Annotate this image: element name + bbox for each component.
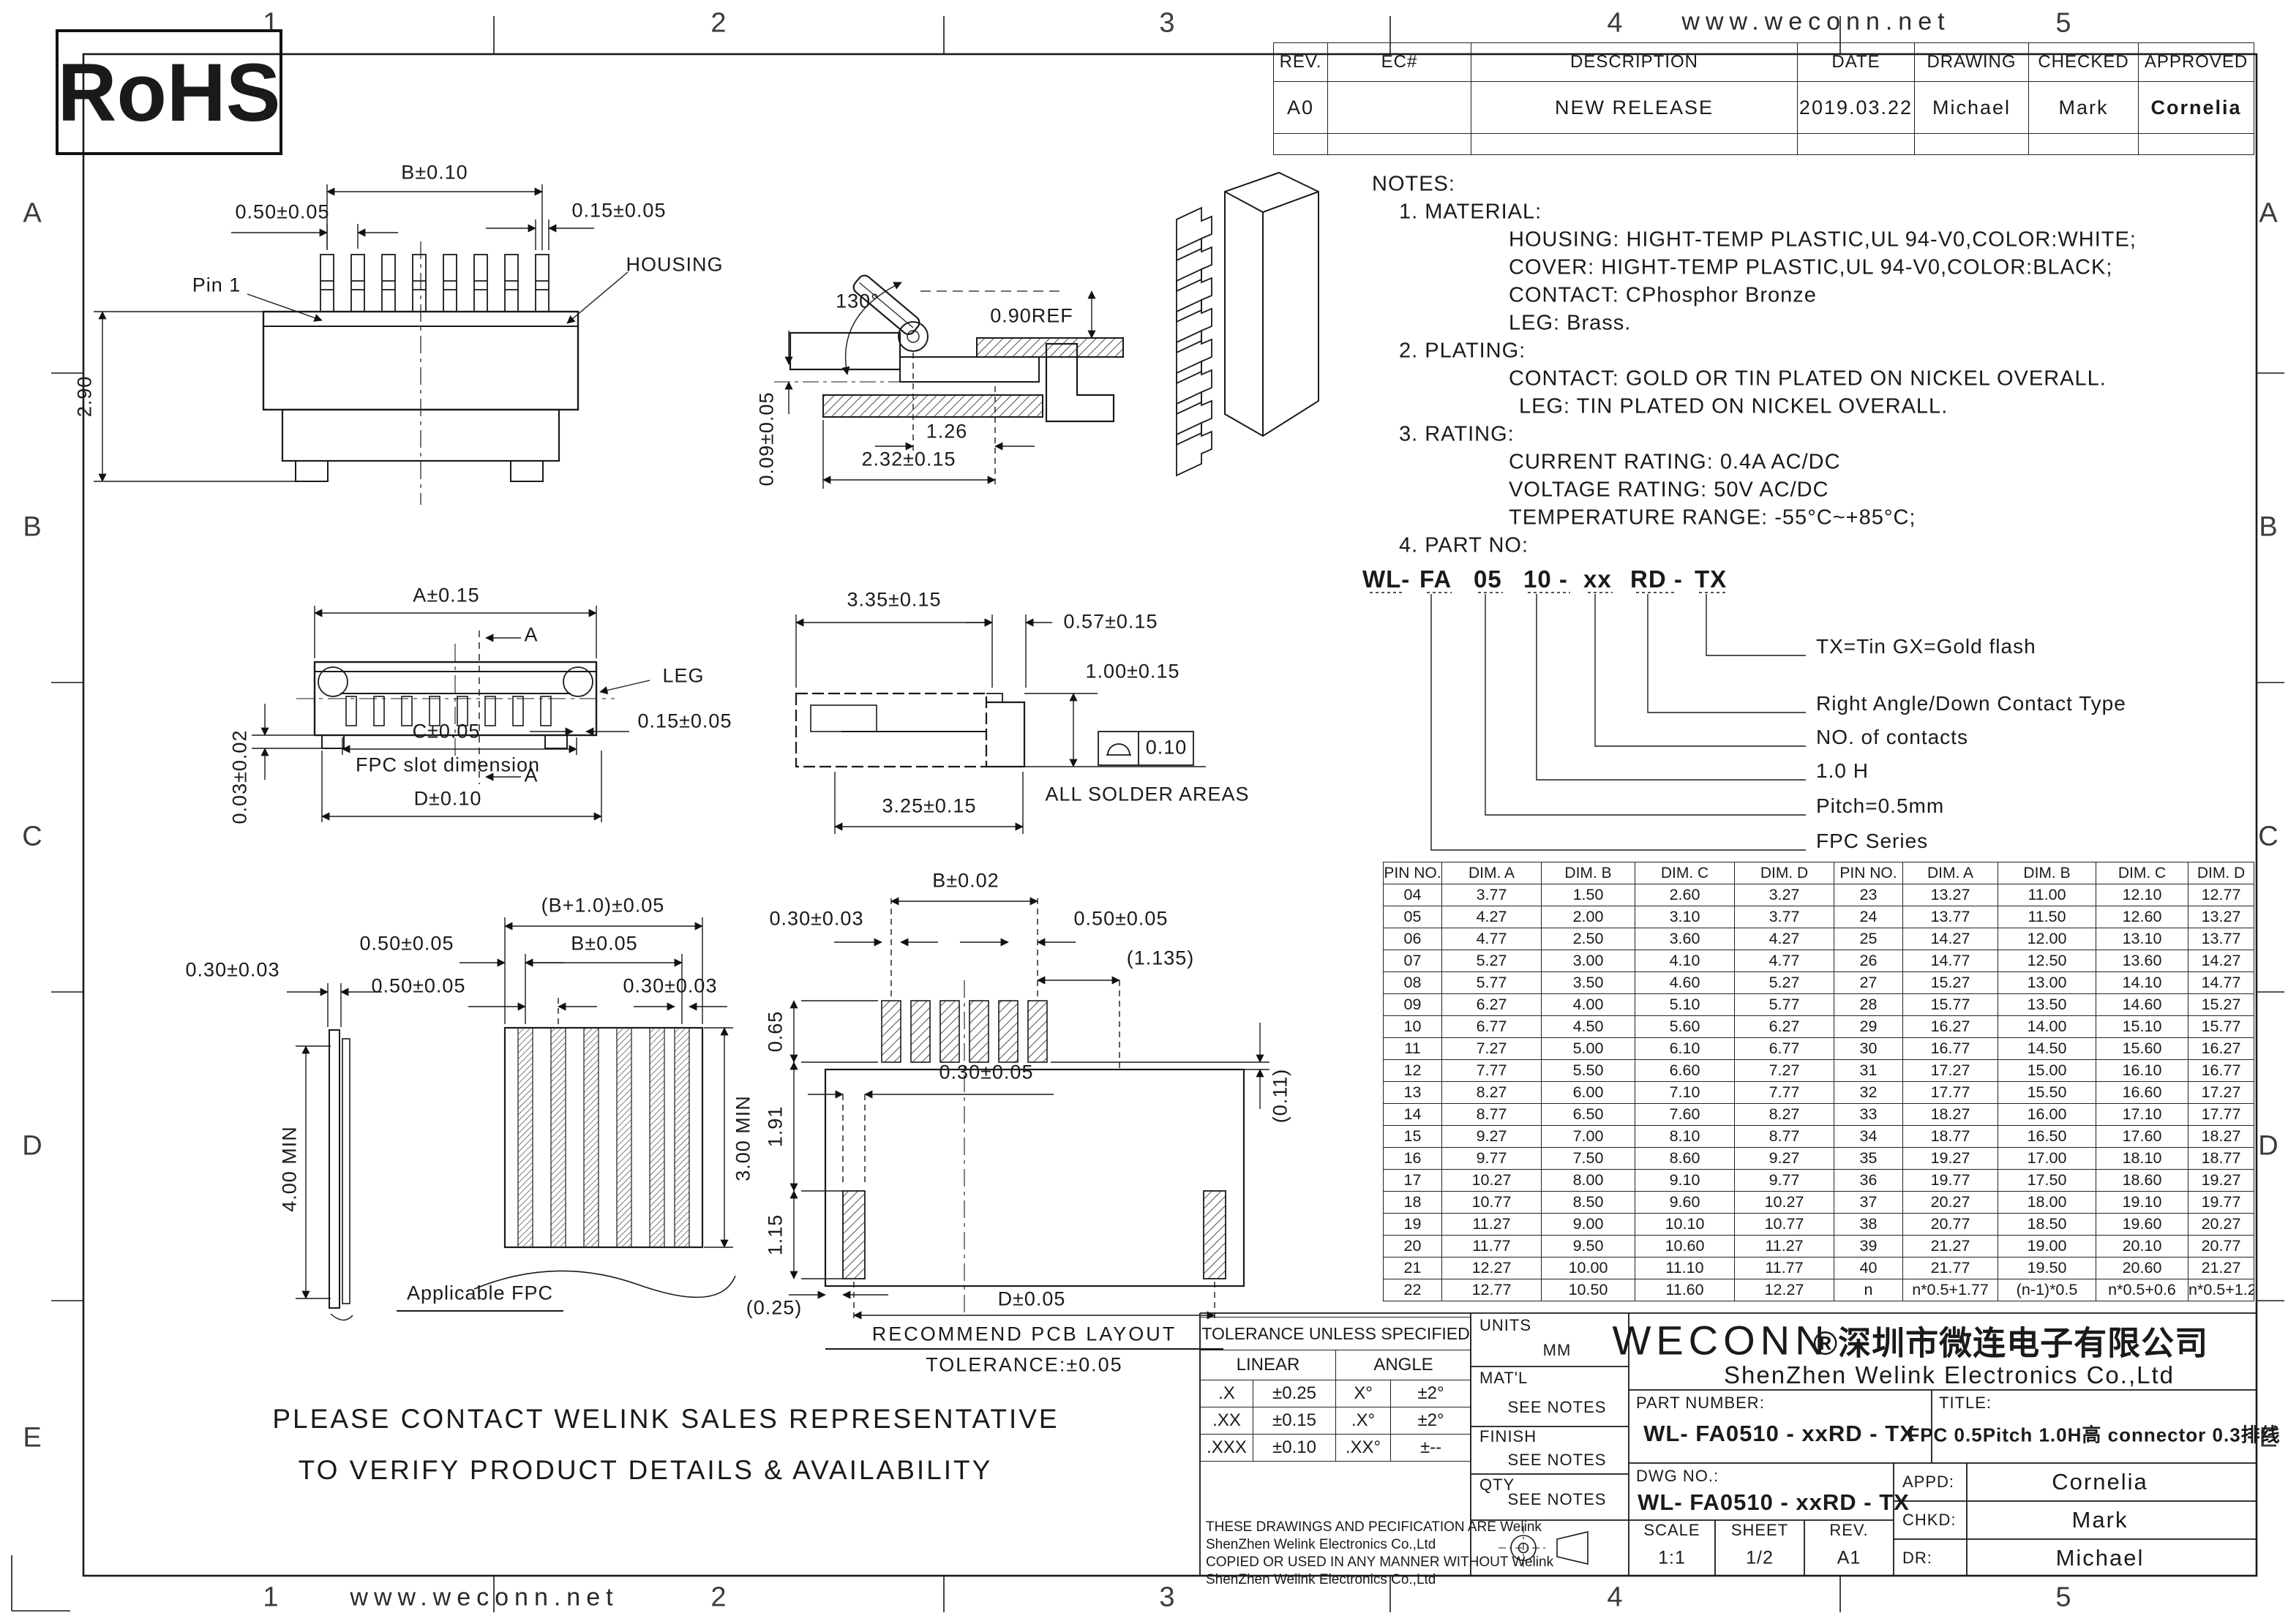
zone-col-5b: 5 [2055,1582,2071,1614]
dim-065: 0.65 [765,1011,787,1053]
label-height: 1.0 H [1816,759,1869,783]
units-label: UNITS [1479,1316,1531,1335]
section-a-top: A [524,624,538,647]
table-row: 106.77 4.505.60 6.27 [1384,1016,1834,1038]
dim-015b: 0.15±0.05 [638,710,732,733]
matl-label: MAT'L [1479,1369,1528,1388]
part-number-value: WL- FA0510 - xxRD - TX [1643,1421,1916,1447]
table-row: 2011.77 9.5010.60 11.27 [1384,1236,1834,1258]
dim-pitch-050: 0.50±0.05 [236,201,330,224]
rohs-text: RoHS [58,45,281,140]
date-header: DATE [1798,43,1915,82]
table-row: 054.27 2.003.10 3.77 [1384,906,1834,928]
scale-label: SCALE [1643,1521,1700,1540]
dim-a-header: DIM. A [1903,862,1998,884]
appd-value: Cornelia [2052,1469,2148,1495]
leg-label: LEG [662,665,704,688]
dim-d010: D±0.10 [414,788,482,811]
part-number-label: PART NUMBER: [1636,1394,1765,1413]
table-row: 2112.27 10.0011.10 11.77 [1384,1258,1834,1279]
dim-003: 0.03±0.02 [229,730,252,824]
zone-row-a-r: A [2259,198,2277,230]
pcb-caption-1: RECOMMEND PCB LAYOUT [872,1323,1177,1346]
chkd-label: CHKD: [1902,1511,1956,1530]
table-row: 127.77 5.506.60 7.27 [1384,1060,1834,1082]
table-row: 064.77 2.503.60 4.27 [1384,928,1834,950]
linear-header: LINEAR [1201,1350,1336,1380]
table-row: nn*0.5+1.77 (n-1)*0.5n*0.5+0.6 n*0.5+1.2… [1834,1279,2254,1301]
dim-b-header: DIM. B [1542,862,1635,884]
note-current: CURRENT RATING: 0.4A AC/DC [1509,451,1841,475]
zone-row-a: A [23,198,41,230]
company-name-cn: ®深圳市微连电子有限公司 [1813,1317,2208,1364]
tolerance-row: .XXX±0.10 .XX°±-- [1201,1435,1471,1462]
sheet-value: 1/2 [1746,1548,1774,1569]
revision-row: A0 NEW RELEASE 2019.03.22 Michael Mark C… [1274,82,2254,134]
zone-col-3b: 3 [1159,1582,1174,1614]
partno-seg-10: 10 - [1523,565,1568,593]
brand-logo: WECONN [1612,1317,1829,1364]
table-row: 2413.77 11.5012.60 13.27 [1834,906,2254,928]
dim-table-left-header: PIN NO. DIM. A DIM. B DIM. C DIM. D [1384,862,1834,884]
table-row: 2514.27 12.0013.10 13.77 [1834,928,2254,950]
title-value: FPC 0.5Pitch 1.0H高 connector 0.3排线 [1908,1421,2280,1448]
dim-030r: 0.30±0.03 [623,975,718,998]
approved-cell: Cornelia [2139,82,2254,134]
scale-value: 1:1 [1658,1548,1686,1569]
dim-table-right-header: PIN NO. DIM. A DIM. B DIM. C DIM. D [1834,862,2254,884]
table-row: 096.27 4.005.10 5.77 [1384,994,1834,1016]
dim-050pcb: 0.50±0.05 [1074,908,1169,931]
dim-325: 3.25±0.15 [882,795,977,818]
legal-line: ShenZhen Welink Electronics Co.,Ltd [1206,1536,1553,1554]
dim-b005: B±0.05 [571,933,637,955]
table-row: 3117.27 15.0016.10 16.77 [1834,1060,2254,1082]
table-row: 159.27 7.008.10 8.77 [1384,1126,1834,1148]
note-leg: LEG: Brass. [1509,312,1631,336]
chkd-value: Mark [2072,1507,2128,1533]
pin1-label: Pin 1 [192,274,241,297]
dim-050a: 0.50±0.05 [360,933,454,955]
dim-a015: A±0.15 [413,584,479,607]
approved-header: APPROVED [2139,43,2254,82]
dwg-no-label: DWG NO.: [1636,1467,1719,1486]
table-row: 2313.27 11.0012.10 12.77 [1834,884,2254,906]
dim-030l: 0.30±0.03 [186,959,280,982]
partno-seg-rd: RD - [1630,565,1683,593]
dim-d-header: DIM. D [1735,862,1834,884]
pin-no-header: PIN NO. [1834,862,1903,884]
table-row: 1911.27 9.0010.10 10.77 [1384,1214,1834,1236]
partno-seg-wl: WL- [1362,565,1410,593]
table-row: 3318.27 16.0017.10 17.77 [1834,1104,2254,1126]
rohs-badge: RoHS [56,29,282,155]
dim-300min: 3.00 MIN [732,1095,755,1181]
appd-label: APPD: [1902,1473,1954,1492]
partno-seg-05: 05 [1474,565,1502,593]
tolerance-row: .X±0.25 X°±2° [1201,1380,1471,1407]
table-row: 085.77 3.504.60 5.27 [1384,972,1834,994]
rev-header: REV. [1274,43,1328,82]
label-plating: TX=Tin GX=Gold flash [1816,635,2036,658]
table-row: 148.77 6.507.60 8.27 [1384,1104,1834,1126]
title-label: TITLE: [1939,1394,1992,1413]
angle-header: ANGLE [1336,1350,1471,1380]
dim-c-header: DIM. C [2096,862,2188,884]
table-row: 3619.77 17.5018.60 19.27 [1834,1170,2254,1192]
dr-label: DR: [1902,1549,1932,1568]
dim-1135: (1.135) [1127,947,1195,970]
checked-cell: Mark [2029,82,2139,134]
sheet-label: SHEET [1731,1521,1788,1540]
engineering-drawing-sheet: 1 2 3 4 5 www.weconn.net 1 www.weconn.ne… [0,0,2288,1624]
zone-row-d-r: D [2258,1131,2278,1162]
ec-header: EC# [1328,43,1471,82]
date-cell: 2019.03.22 [1798,82,1915,134]
zone-row-e: E [23,1423,41,1454]
dim-a-header: DIM. A [1442,862,1542,884]
table-row: 3016.77 14.5015.60 16.27 [1834,1038,2254,1060]
dim-angle-130: 130° [836,290,879,313]
dim-050b: 0.50±0.05 [372,975,466,998]
dim-height-290: 2.90 [74,376,97,418]
zone-row-b: B [23,512,41,544]
dim-c005: C±0.05 [413,721,481,743]
table-row: 3519.27 17.0018.10 18.77 [1834,1148,2254,1170]
note-partno-heading: 4. PART NO: [1399,534,1529,558]
partno-seg-xx: xx [1583,565,1612,593]
legal-notice: THESE DRAWINGS AND PECIFICATION ARE Weli… [1206,1519,1553,1589]
dim-b002: B±0.02 [932,870,999,892]
pcb-caption-2: TOLERANCE:±0.05 [926,1354,1122,1377]
zone-row-b-r: B [2259,512,2277,544]
dwg-no-value: WL- FA0510 - xxRD - TX [1638,1489,1910,1516]
table-row: 075.27 3.004.10 4.77 [1384,950,1834,972]
finish-label: FINISH [1479,1427,1537,1446]
qty-value: SEE NOTES [1508,1490,1607,1509]
dim-100: 1.00±0.15 [1086,661,1180,683]
description-cell: NEW RELEASE [1471,82,1798,134]
dim-c-header: DIM. C [1635,862,1735,884]
dim-d005: D±0.05 [998,1288,1066,1311]
dimension-table-left: PIN NO. DIM. A DIM. B DIM. C DIM. D 043.… [1383,862,1834,1301]
legal-line: THESE DRAWINGS AND PECIFICATION ARE Weli… [1206,1519,1553,1536]
table-row: 3820.77 18.5019.60 20.27 [1834,1214,2254,1236]
table-row: 117.27 5.006.10 6.77 [1384,1038,1834,1060]
note-material: 1. MATERIAL: [1399,200,1542,225]
zone-row-c: C [22,822,42,853]
dimension-table-right: PIN NO. DIM. A DIM. B DIM. C DIM. D 2313… [1834,862,2254,1301]
ec-cell [1328,82,1471,134]
dim-090ref: 0.90REF [990,305,1073,328]
drawing-cell: Michael [1915,82,2029,134]
note-plating-leg: LEG: TIN PLATED ON NICKEL OVERALL. [1519,395,1948,419]
dim-bplus1: (B+1.0)±0.05 [541,895,665,917]
label-pitch: Pitch=0.5mm [1816,794,1944,818]
table-row: 2815.77 13.5014.60 15.27 [1834,994,2254,1016]
site-url-top: www.weconn.net [1681,8,1950,37]
description-header: DESCRIPTION [1471,43,1798,82]
note-cover: COVER: HIGHT-TEMP PLASTIC,UL 94-V0,COLOR… [1509,256,2112,280]
dim-191: 1.91 [765,1106,787,1148]
table-row: 043.77 1.502.60 3.27 [1384,884,1834,906]
dim-400min: 4.00 MIN [279,1126,301,1212]
dim-b-header: DIM. B [1998,862,2096,884]
table-row: 2916.27 14.0015.10 15.77 [1834,1016,2254,1038]
note-housing: HOUSING: HIGHT-TEMP PLASTIC,UL 94-V0,COL… [1509,228,2137,252]
zone-col-2: 2 [710,8,726,40]
table-row: 3921.27 19.0020.10 20.77 [1834,1236,2254,1258]
tolerance-table: TOLERANCE UNLESS SPECIFIED LINEAR ANGLE … [1200,1317,1471,1462]
rev-label: REV. [1829,1521,1868,1540]
rev-value: A1 [1837,1548,1861,1569]
dim-115: 1.15 [765,1214,787,1256]
dim-335: 3.35±0.15 [847,589,942,612]
tolerance-row: .XX±0.15 .X°±2° [1201,1407,1471,1435]
table-row: 2212.77 10.5011.60 12.27 [1384,1279,1834,1301]
zone-col-3: 3 [1159,8,1174,40]
footer-note-line1: PLEASE CONTACT WELINK SALES REPRESENTATI… [272,1404,1059,1435]
table-row: 2614.77 12.5013.60 14.27 [1834,950,2254,972]
dim-030c: 0.30±0.05 [939,1061,1034,1084]
revision-empty-row [1274,134,2254,155]
table-row: 1810.77 8.509.60 10.27 [1384,1192,1834,1214]
revision-header-row: REV. EC# DESCRIPTION DATE DRAWING CHECKE… [1274,43,2254,82]
label-contact-type: Right Angle/Down Contact Type [1816,692,2126,715]
label-no-of-contacts: NO. of contacts [1816,726,1968,749]
table-row: 3720.27 18.0019.10 19.77 [1834,1192,2254,1214]
dim-232: 2.32±0.15 [862,448,956,471]
applicable-fpc-caption: Applicable FPC [407,1282,553,1305]
zone-col-5: 5 [2055,8,2071,40]
dim-009: 0.09±0.05 [756,392,779,486]
table-row: 1710.27 8.009.10 9.77 [1384,1170,1834,1192]
zone-col-2b: 2 [710,1582,726,1614]
table-row: 138.27 6.007.10 7.77 [1384,1082,1834,1104]
pin-no-header: PIN NO. [1384,862,1442,884]
partno-seg-fa: FA [1419,565,1452,593]
flatness-value: 0.10 [1146,737,1188,759]
label-series: FPC Series [1816,830,1928,853]
fpc-slot-label: FPC slot dimension [356,754,540,777]
checked-header: CHECKED [2029,43,2139,82]
note-contact: CONTACT: CPhosphor Bronze [1509,284,1817,308]
dim-d-header: DIM. D [2188,862,2254,884]
footer-note-line2: TO VERIFY PRODUCT DETAILS & AVAILABILITY [299,1455,993,1486]
drawing-header: DRAWING [1915,43,2029,82]
zone-col-4: 4 [1607,8,1622,40]
dim-011: (0.11) [1269,1069,1292,1124]
note-plating-contact: CONTACT: GOLD OR TIN PLATED ON NICKEL OV… [1509,367,2107,391]
zone-col-4b: 4 [1607,1582,1622,1614]
note-rating: 3. RATING: [1399,423,1515,447]
matl-value: SEE NOTES [1508,1398,1607,1417]
table-row: 2715.27 13.0014.10 14.77 [1834,972,2254,994]
dim-pinwidth-015: 0.15±0.05 [572,200,667,222]
dr-value: Michael [2056,1545,2145,1571]
notes-title: NOTES: [1372,173,1455,197]
rev-cell: A0 [1274,82,1328,134]
note-temperature: TEMPERATURE RANGE: -55°C~+85°C; [1509,506,1916,530]
site-url-bottom: www.weconn.net [350,1584,618,1612]
legal-line: ShenZhen Welink Electronics Co.,Ltd [1206,1571,1553,1589]
dim-025: (0.25) [746,1297,803,1320]
table-row: 3418.77 16.5017.60 18.27 [1834,1126,2254,1148]
zone-col-1b: 1 [263,1582,278,1614]
table-row: 4021.77 19.5020.60 21.27 [1834,1258,2254,1279]
dim-b010: B±0.10 [401,162,468,184]
housing-label: HOUSING [626,254,723,277]
dim-057: 0.57±0.15 [1064,611,1158,634]
company-name-en: ShenZhen Welink Electronics Co.,Ltd [1724,1361,2175,1389]
note-voltage: VOLTAGE RATING: 50V AC/DC [1509,478,1829,503]
table-row: 169.77 7.508.60 9.27 [1384,1148,1834,1170]
tolerance-title: TOLERANCE UNLESS SPECIFIED [1201,1317,1471,1350]
all-solder-areas-label: ALL SOLDER AREAS [1045,783,1249,806]
legal-line: COPIED OR USED IN ANY MANNER WITHOUT Wel… [1206,1554,1553,1571]
note-plating: 2. PLATING: [1399,339,1526,364]
table-row: 3217.77 15.5016.60 17.27 [1834,1082,2254,1104]
units-value: MM [1543,1341,1572,1360]
finish-value: SEE NOTES [1508,1451,1607,1470]
revision-table: REV. EC# DESCRIPTION DATE DRAWING CHECKE… [1273,42,2254,155]
partno-seg-tx: TX [1695,565,1727,593]
zone-row-d: D [22,1131,42,1162]
zone-row-c-r: C [2258,822,2278,853]
dim-030pcb: 0.30±0.03 [770,908,864,931]
dim-126: 1.26 [926,421,968,443]
